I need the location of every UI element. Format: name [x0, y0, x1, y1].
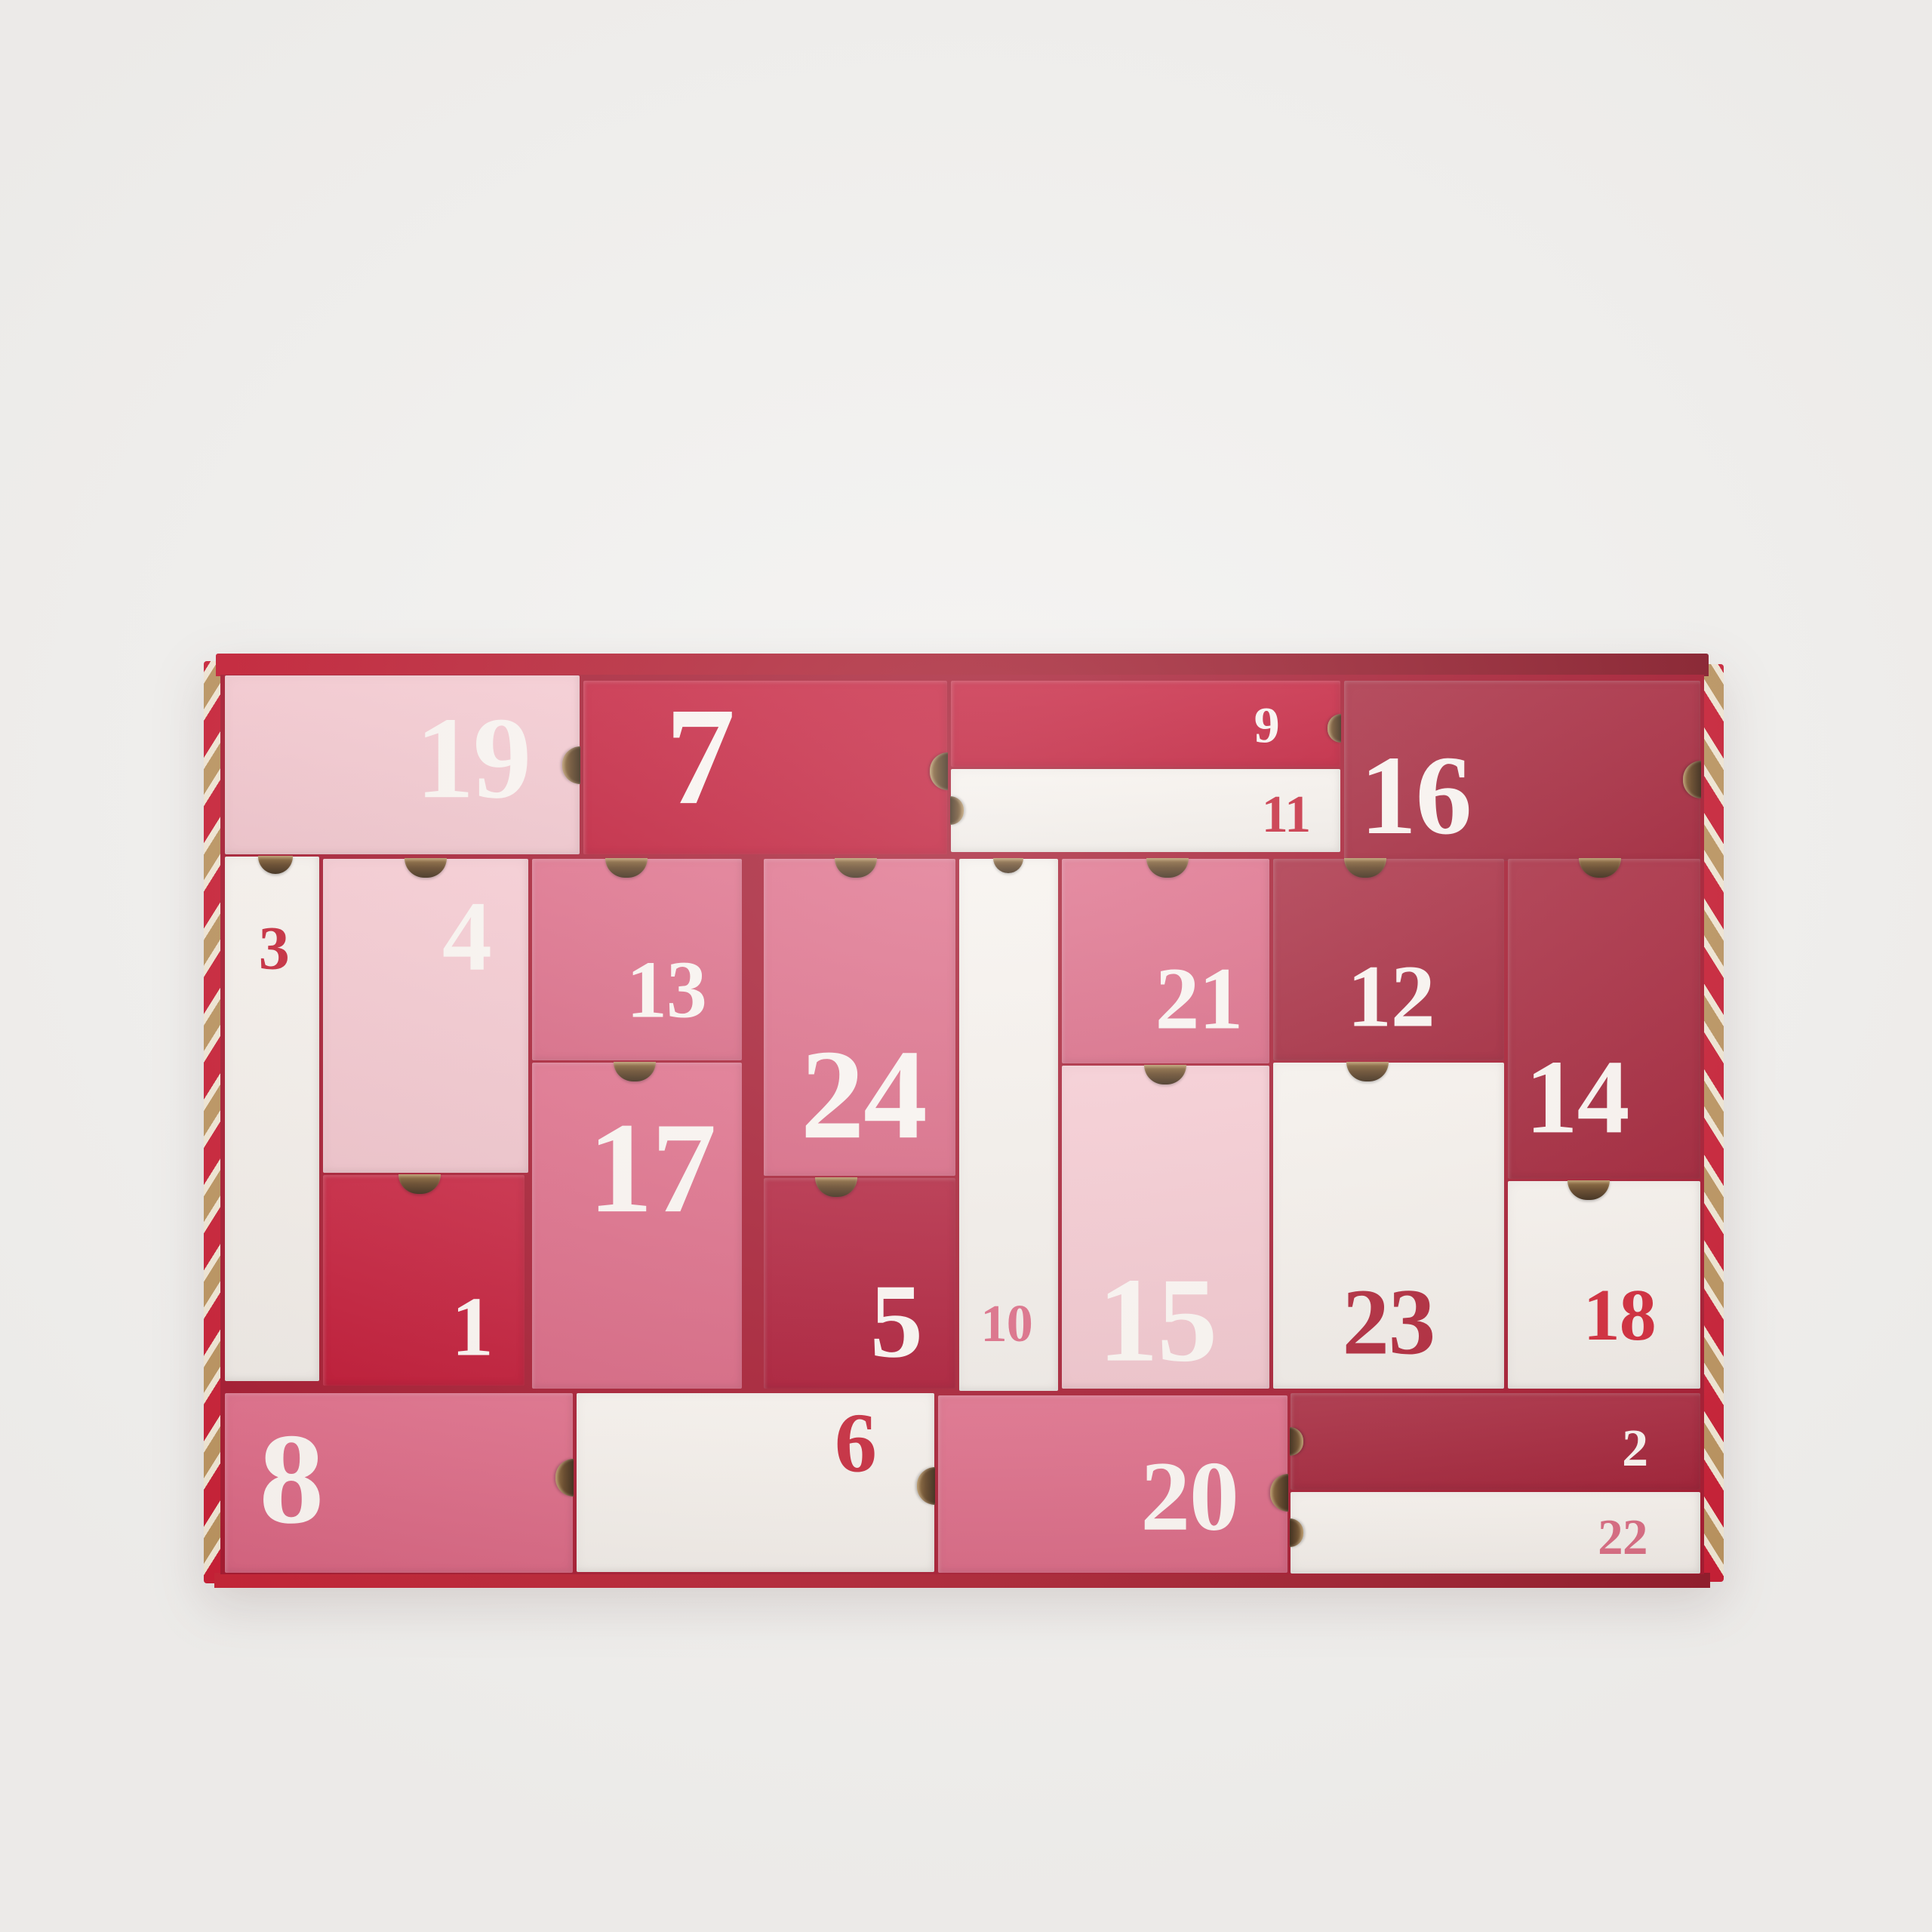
advent-box-18-number: 18: [1583, 1278, 1656, 1352]
advent-box-19: 19: [225, 675, 580, 854]
advent-box-9-number: 9: [1254, 700, 1279, 751]
advent-box-19-number: 19: [416, 700, 531, 817]
advent-box-16-number: 16: [1360, 739, 1471, 852]
advent-box-15-thumb-notch: [1144, 1065, 1186, 1084]
advent-box-10: 10: [959, 859, 1058, 1391]
advent-box-18-thumb-notch: [1567, 1180, 1610, 1200]
advent-box-20-thumb-notch: [1270, 1474, 1288, 1512]
advent-box-5: 5: [764, 1178, 956, 1389]
advent-box-23-thumb-notch: [1346, 1062, 1389, 1081]
advent-box-7-number: 7: [666, 688, 734, 827]
advent-box-21-number: 21: [1155, 954, 1243, 1043]
advent-box-3-thumb-notch: [258, 856, 293, 874]
advent-box-22: 22: [1291, 1492, 1700, 1574]
advent-box-3-number: 3: [259, 918, 289, 980]
advent-box-9: 9: [951, 681, 1340, 766]
calendar-face: 197911163411317245102115122314188620222: [220, 675, 1704, 1574]
tray-right-candy-stripe-edge: [1704, 664, 1724, 1582]
advent-box-2-thumb-notch: [1290, 1427, 1303, 1456]
advent-box-13-thumb-notch: [605, 858, 648, 878]
advent-box-7-thumb-notch: [930, 752, 948, 790]
advent-box-1-number: 1: [451, 1285, 493, 1370]
advent-box-23-number: 23: [1342, 1276, 1435, 1371]
advent-box-4: 4: [323, 859, 528, 1174]
advent-box-10-thumb-notch: [993, 858, 1023, 873]
photo-background: 197911163411317245102115122314188620222: [0, 0, 1932, 1932]
advent-box-15-number: 15: [1098, 1259, 1217, 1380]
advent-box-1: 1: [323, 1175, 525, 1385]
advent-box-24-thumb-notch: [835, 858, 877, 878]
advent-box-12: 12: [1273, 859, 1504, 1061]
advent-box-16: 16: [1344, 681, 1700, 860]
advent-box-8-thumb-notch: [555, 1459, 574, 1497]
advent-box-17-number: 17: [588, 1103, 715, 1233]
advent-box-21: 21: [1062, 859, 1269, 1063]
advent-box-11: 11: [951, 769, 1340, 852]
advent-box-11-number: 11: [1262, 789, 1311, 841]
advent-box-20: 20: [938, 1395, 1287, 1573]
advent-box-14-thumb-notch: [1579, 858, 1621, 878]
advent-box-20-number: 20: [1140, 1446, 1238, 1546]
advent-box-1-thumb-notch: [398, 1174, 441, 1194]
advent-calendar: 197911163411317245102115122314188620222: [204, 654, 1724, 1588]
advent-box-23: 23: [1273, 1063, 1504, 1389]
advent-box-19-thumb-notch: [562, 746, 580, 784]
advent-box-6-number: 6: [835, 1401, 876, 1485]
advent-box-9-thumb-notch: [1327, 714, 1341, 743]
advent-box-24: 24: [764, 859, 956, 1176]
advent-box-14: 14: [1508, 859, 1701, 1179]
advent-box-18: 18: [1508, 1181, 1701, 1389]
advent-box-15: 15: [1062, 1066, 1269, 1389]
advent-box-17-thumb-notch: [614, 1062, 656, 1081]
advent-box-11-thumb-notch: [950, 796, 964, 825]
advent-box-6: 6: [577, 1393, 934, 1572]
advent-box-6-thumb-notch: [917, 1467, 935, 1505]
advent-box-13: 13: [532, 859, 742, 1061]
advent-box-16-thumb-notch: [1683, 761, 1701, 798]
advent-box-12-thumb-notch: [1344, 858, 1386, 878]
advent-box-2: 2: [1291, 1393, 1700, 1490]
advent-box-24-number: 24: [801, 1030, 927, 1158]
advent-box-4-thumb-notch: [405, 858, 447, 878]
advent-box-3: 3: [225, 857, 319, 1381]
advent-box-5-thumb-notch: [815, 1177, 857, 1197]
advent-box-5-number: 5: [870, 1269, 922, 1374]
advent-box-10-number: 10: [981, 1298, 1033, 1351]
advent-box-7: 7: [583, 681, 948, 854]
tray-top-edge: [216, 654, 1709, 676]
advent-box-8-number: 8: [259, 1414, 322, 1544]
advent-box-2-number: 2: [1622, 1423, 1647, 1475]
advent-box-17: 17: [532, 1063, 742, 1389]
advent-box-8: 8: [225, 1393, 573, 1573]
advent-box-22-thumb-notch: [1290, 1518, 1303, 1547]
tray-left-candy-stripe-edge: [204, 661, 222, 1583]
advent-box-14-number: 14: [1525, 1044, 1629, 1150]
advent-box-22-number: 22: [1598, 1512, 1647, 1563]
tray-bottom-rim: [214, 1573, 1710, 1588]
advent-box-21-thumb-notch: [1146, 858, 1189, 878]
advent-box-12-number: 12: [1347, 952, 1435, 1041]
advent-box-4-number: 4: [442, 887, 491, 986]
advent-box-13-number: 13: [626, 950, 706, 1032]
